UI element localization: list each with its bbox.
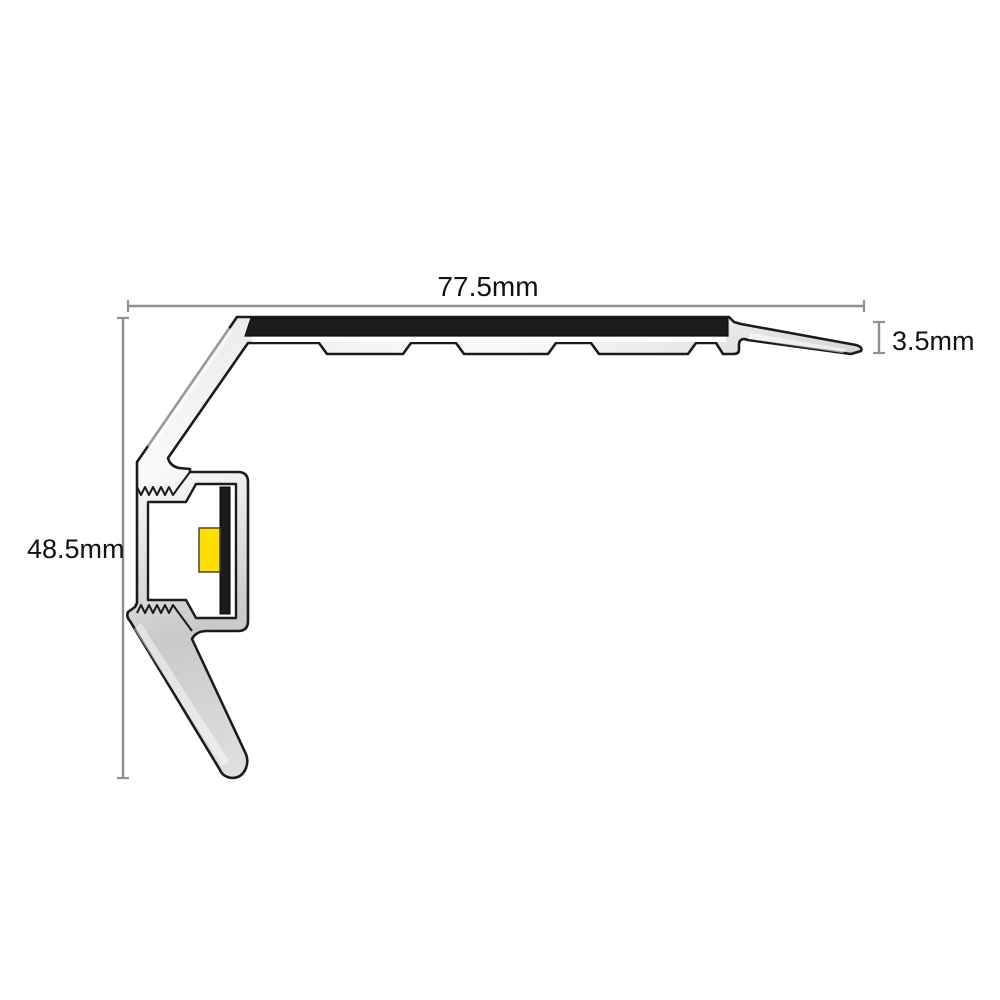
- profile-body: [127, 317, 861, 778]
- dimension-height-label: 48.5mm: [27, 534, 125, 564]
- stair-nosing-profile-diagram: 77.5mm 48.5mm 3.5mm: [0, 0, 1000, 1000]
- dimension-width: 77.5mm: [128, 271, 864, 312]
- anti-slip-insert-strip: [245, 318, 728, 336]
- dimension-thickness: 3.5mm: [873, 322, 975, 356]
- led-module: [199, 528, 220, 572]
- led-pcb-strip: [220, 487, 230, 614]
- dimension-height: 48.5mm: [27, 318, 129, 778]
- dimension-thickness-label: 3.5mm: [892, 326, 975, 356]
- tread-web-highlight: [252, 336, 726, 342]
- dimension-width-label: 77.5mm: [437, 271, 538, 302]
- profile-drawing-canvas: 77.5mm 48.5mm 3.5mm: [0, 0, 1000, 1000]
